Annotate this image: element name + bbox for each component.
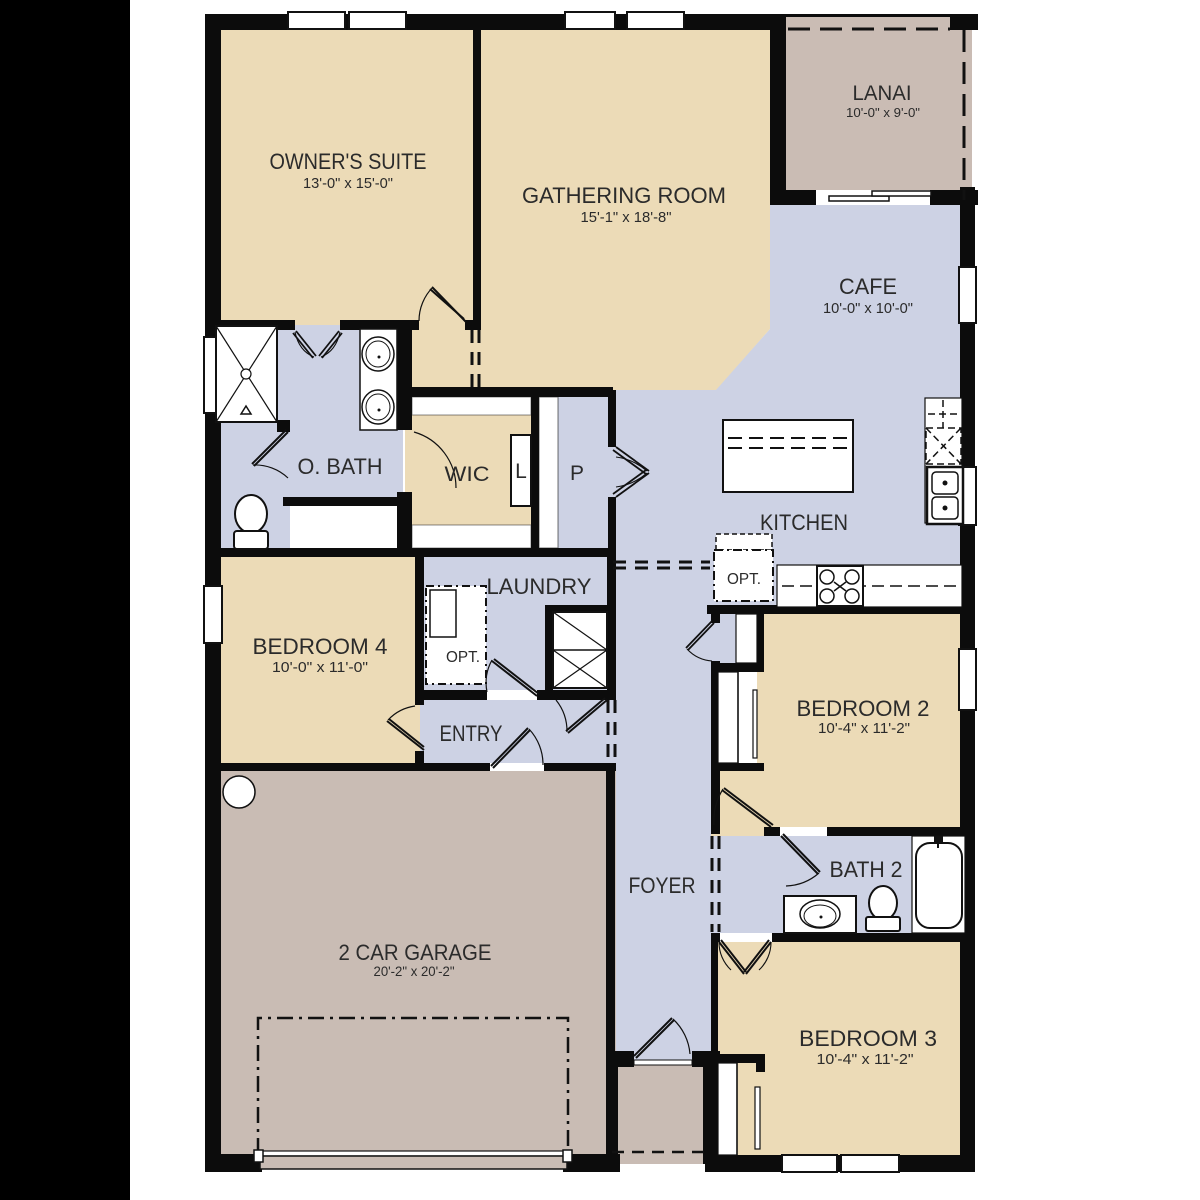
svg-text:15'-1" x 18'-8": 15'-1" x 18'-8" (581, 209, 672, 226)
svg-text:BEDROOM 3: BEDROOM 3 (799, 1026, 937, 1051)
svg-text:2 CAR GARAGE: 2 CAR GARAGE (339, 940, 492, 965)
svg-text:WIC: WIC (445, 463, 490, 486)
svg-text:OPT.: OPT. (727, 571, 761, 588)
svg-text:LAUNDRY: LAUNDRY (487, 574, 592, 599)
svg-text:10'-4" x 11'-2": 10'-4" x 11'-2" (818, 720, 910, 737)
svg-text:KITCHEN: KITCHEN (760, 510, 848, 535)
svg-text:O. BATH: O. BATH (298, 454, 383, 479)
svg-text:BATH 2: BATH 2 (830, 857, 903, 882)
svg-text:ENTRY: ENTRY (440, 721, 503, 746)
svg-text:10'-4" x 11'-2": 10'-4" x 11'-2" (817, 1051, 914, 1068)
svg-text:20'-2" x 20'-2": 20'-2" x 20'-2" (374, 963, 455, 979)
svg-text:OPT.: OPT. (446, 649, 480, 666)
svg-text:LANAI: LANAI (853, 82, 912, 105)
svg-text:BEDROOM 2: BEDROOM 2 (797, 696, 930, 721)
svg-text:FOYER: FOYER (629, 873, 696, 898)
svg-text:OWNER'S SUITE: OWNER'S SUITE (270, 149, 427, 174)
svg-text:10'-0" x 10'-0": 10'-0" x 10'-0" (823, 300, 913, 317)
svg-text:GATHERING ROOM: GATHERING ROOM (522, 183, 726, 208)
svg-text:CAFE: CAFE (839, 274, 897, 299)
svg-text:10'-0" x 11'-0": 10'-0" x 11'-0" (272, 659, 368, 676)
svg-text:13'-0" x 15'-0": 13'-0" x 15'-0" (303, 175, 393, 192)
svg-text:10'-0" x 9'-0": 10'-0" x 9'-0" (846, 105, 920, 120)
svg-text:BEDROOM 4: BEDROOM 4 (253, 634, 388, 659)
svg-text:L: L (515, 460, 527, 483)
svg-text:P: P (570, 462, 584, 485)
